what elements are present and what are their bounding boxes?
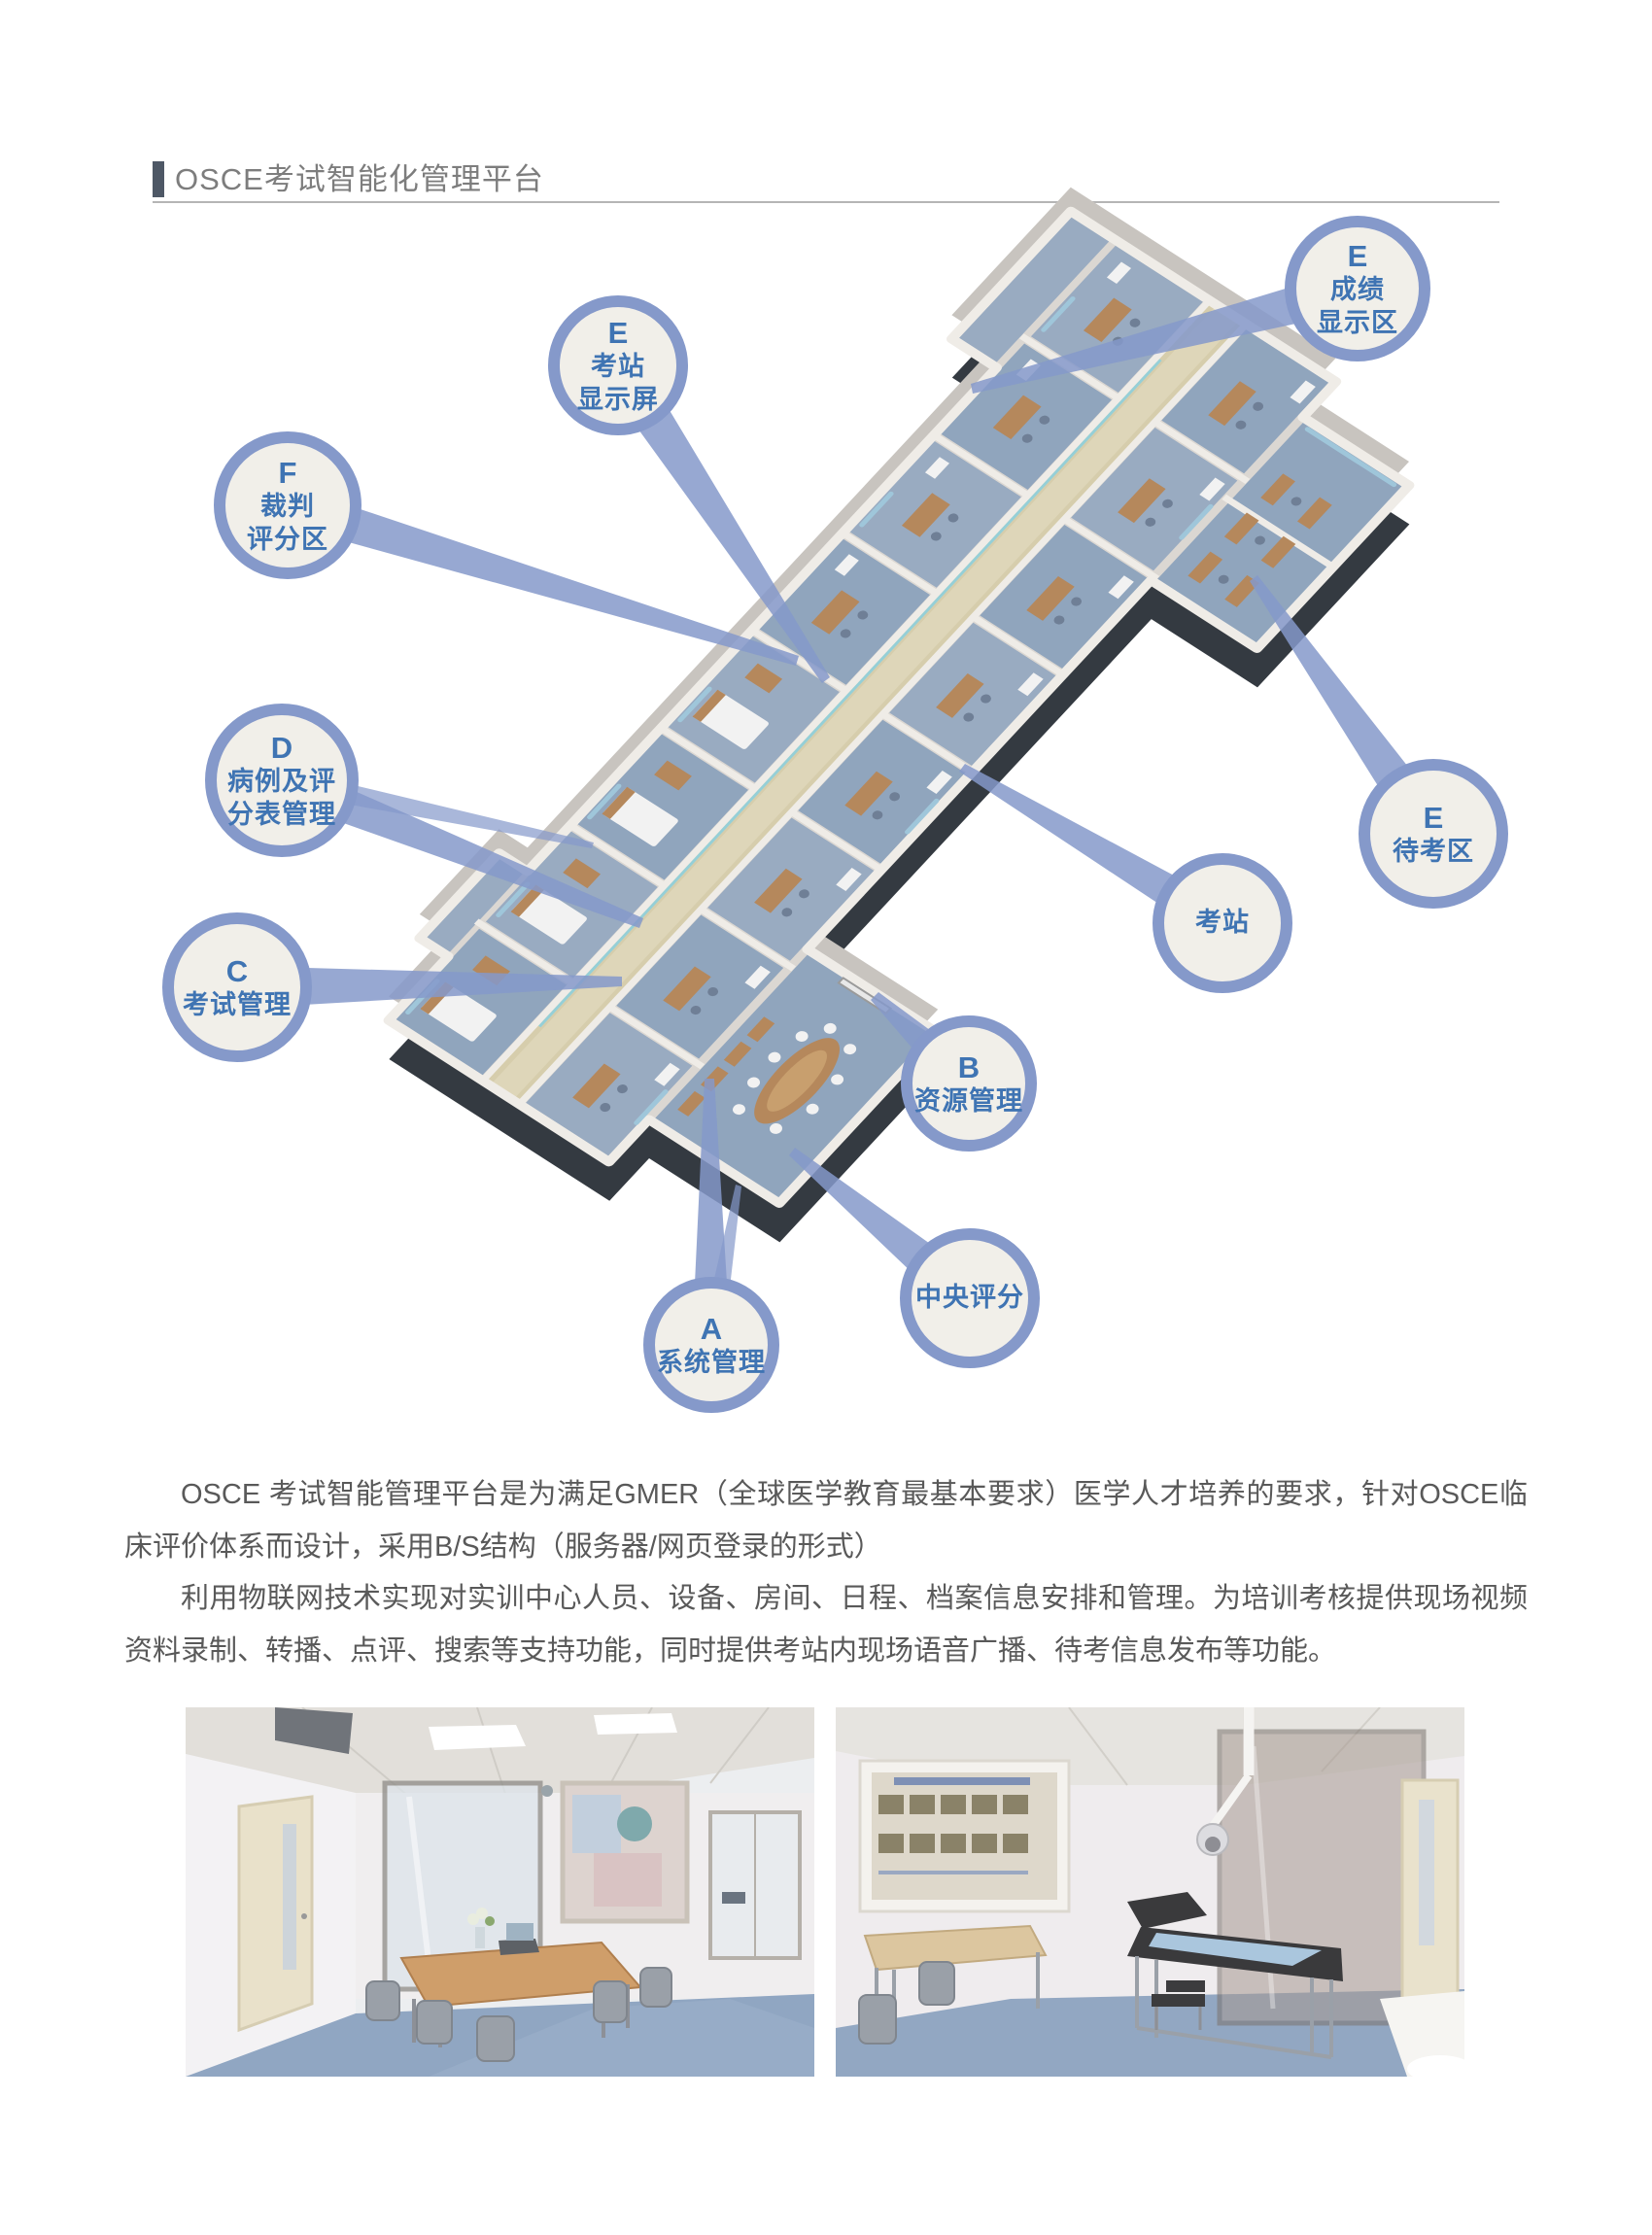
callout-label: 待考区 (1393, 836, 1474, 869)
callout-label: 成绩 (1330, 274, 1385, 307)
page: OSCE考试智能化管理平台 (0, 0, 1652, 2235)
callout-letter: B (958, 1049, 980, 1085)
callout-system-management: A 系统管理 (643, 1277, 779, 1413)
photo-meeting-room (186, 1707, 814, 2077)
photo-exam-room (836, 1707, 1464, 2077)
callout-label: 系统管理 (657, 1347, 766, 1380)
callout-score-display-area: E 成绩 显示区 (1285, 216, 1430, 361)
callout-label: 病例及评 (227, 766, 336, 799)
callout-case-score-sheet-mgmt: D 病例及评 分表管理 (205, 704, 359, 857)
callout-label: 资源管理 (914, 1085, 1023, 1118)
callout-exam-management: C 考试管理 (162, 912, 312, 1062)
floorplan-figure: E 成绩 显示区 E 考站 显示屏 F 裁判 评分区 D 病例及评 分表管理 C… (0, 0, 1652, 1477)
callout-waiting-area: E 待考区 (1359, 759, 1508, 909)
callout-letter: D (271, 730, 293, 766)
photo-row (186, 1707, 1464, 2077)
callout-central-scoring: 中央评分 (900, 1228, 1040, 1368)
callout-label: 考站 (1195, 907, 1250, 940)
callout-label: 裁判 (260, 491, 315, 524)
callout-exam-station: 考站 (1153, 853, 1292, 993)
callout-letter: E (608, 315, 629, 351)
body-copy: OSCE 考试智能管理平台是为满足GMER（全球医学教育最基本要求）医学人才培养… (124, 1469, 1528, 1678)
callout-station-display-screen: E 考站 显示屏 (548, 295, 688, 435)
callout-letter: E (1348, 238, 1368, 274)
callout-label: 考站 (591, 351, 645, 384)
callout-label: 分表管理 (227, 799, 336, 832)
callout-letter: F (279, 455, 297, 491)
callout-letter: C (226, 953, 248, 989)
callout-label: 评分区 (247, 524, 328, 557)
callout-label: 中央评分 (915, 1282, 1024, 1315)
paragraph-intro: OSCE 考试智能管理平台是为满足GMER（全球医学教育最基本要求）医学人才培养… (124, 1469, 1528, 1573)
paragraph-features: 利用物联网技术实现对实训中心人员、设备、房间、日程、档案信息安排和管理。为培训考… (124, 1573, 1528, 1677)
callout-label: 显示屏 (577, 384, 659, 417)
callout-label: 考试管理 (183, 989, 292, 1022)
callout-letter: A (701, 1311, 722, 1347)
callout-resource-management: B 资源管理 (901, 1015, 1037, 1152)
callout-label: 显示区 (1317, 307, 1398, 340)
callout-letter: E (1424, 800, 1444, 836)
callout-judge-scoring-area: F 裁判 评分区 (214, 431, 361, 579)
